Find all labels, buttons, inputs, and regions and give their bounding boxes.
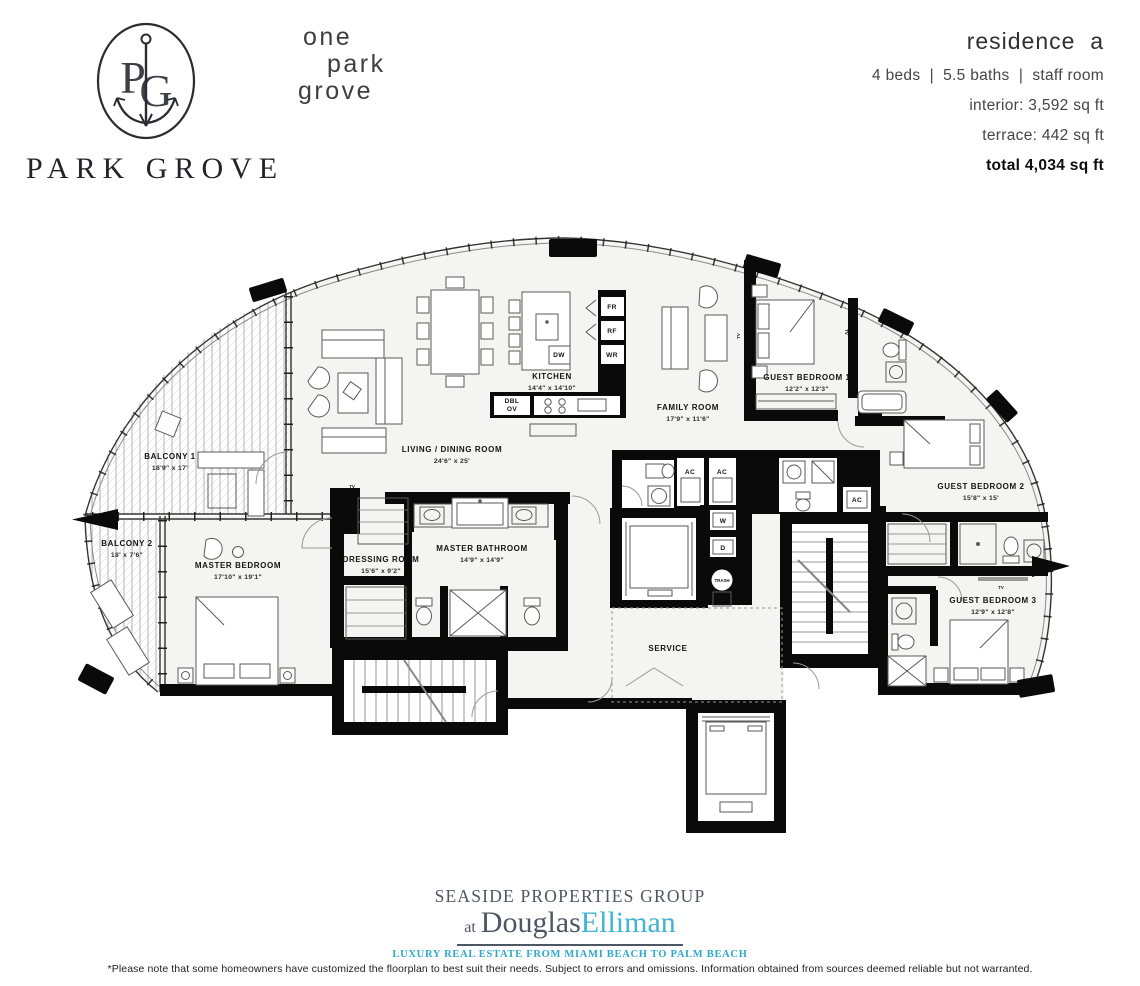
label-tv-guest3: TV — [998, 585, 1004, 590]
dims-kitchen: 14'4" x 14'10" — [528, 385, 576, 392]
broker-divider — [457, 944, 683, 946]
dims-master-bathroom: 14'9" x 14'9" — [460, 557, 504, 564]
label-tv-family: TV — [736, 333, 741, 339]
label-dressing-room: DRESSING ROOM — [343, 555, 420, 564]
label-wr: WR — [606, 352, 618, 359]
label-balcony1: BALCONY 1 — [144, 452, 195, 461]
label-master-bathroom: MASTER BATHROOM — [436, 544, 528, 553]
label-washer: W — [720, 518, 727, 525]
dims-guest-bedroom2: 15'8" x 15' — [963, 495, 999, 502]
broker-brand-line: atDouglasElliman — [0, 908, 1140, 943]
floorplan-drawing: BALCONY 1 18'9" x 17' BALCONY 2 18' x 7'… — [0, 0, 1140, 986]
broker-group-name: SEASIDE PROPERTIES GROUP — [0, 886, 1140, 907]
label-fr: FR — [607, 304, 617, 311]
label-rf: RF — [607, 328, 617, 335]
label-master-bedroom: MASTER BEDROOM — [195, 561, 281, 570]
label-balcony2: BALCONY 2 — [101, 539, 152, 548]
label-guest-bedroom2: GUEST BEDROOM 2 — [937, 482, 1024, 491]
label-kitchen: KITCHEN — [532, 372, 572, 381]
dims-living-dining: 24'6" x 25' — [434, 458, 470, 465]
label-family-room: FAMILY ROOM — [657, 403, 719, 412]
dims-family-room: 17'9" x 11'6" — [666, 416, 709, 423]
label-dw: DW — [553, 352, 565, 359]
dims-balcony2: 18' x 7'6" — [111, 552, 143, 559]
broker-douglas: Douglas — [481, 906, 581, 939]
label-living-dining: LIVING / DINING ROOM — [402, 445, 502, 454]
label-ac1: AC — [685, 469, 695, 476]
label-guest-bedroom1: GUEST BEDROOM 1 — [763, 373, 850, 382]
broker-tagline: LUXURY REAL ESTATE FROM MIAMI BEACH TO P… — [0, 949, 1140, 960]
label-trash: TRASH — [714, 578, 729, 583]
label-service: SERVICE — [648, 644, 687, 653]
dims-guest-bedroom1: 12'2" x 12'3" — [785, 386, 829, 393]
broker-at: at — [464, 919, 476, 936]
dims-master-bedroom: 17'10" x 19'1" — [214, 574, 262, 581]
label-guest-bedroom3: GUEST BEDROOM 3 — [949, 596, 1036, 605]
dims-guest-bedroom3: 12'9" x 12'8" — [971, 609, 1015, 616]
label-dryer: D — [720, 545, 725, 552]
label-tv-master: TV — [349, 484, 355, 489]
kitchen-fixtures — [490, 290, 626, 436]
label-dbl: DBL — [505, 398, 520, 405]
label-ac2: AC — [717, 469, 727, 476]
dims-dressing-room: 15'6" x 9'2" — [361, 568, 401, 575]
label-tv-guest1: TV — [844, 329, 849, 335]
label-ac3: AC — [852, 497, 862, 504]
label-ov: OV — [507, 406, 518, 413]
dims-balcony1: 18'9" x 17' — [152, 465, 188, 472]
broker-logo: SEASIDE PROPERTIES GROUP atDouglasEllima… — [0, 886, 1140, 960]
disclaimer-text: *Please note that some homeowners have c… — [0, 963, 1140, 975]
floorplan-sheet: P G PARK GROVE one park grove residence … — [0, 0, 1140, 986]
guest-bedroom2-furniture — [890, 420, 984, 468]
broker-elliman: Elliman — [581, 906, 676, 939]
